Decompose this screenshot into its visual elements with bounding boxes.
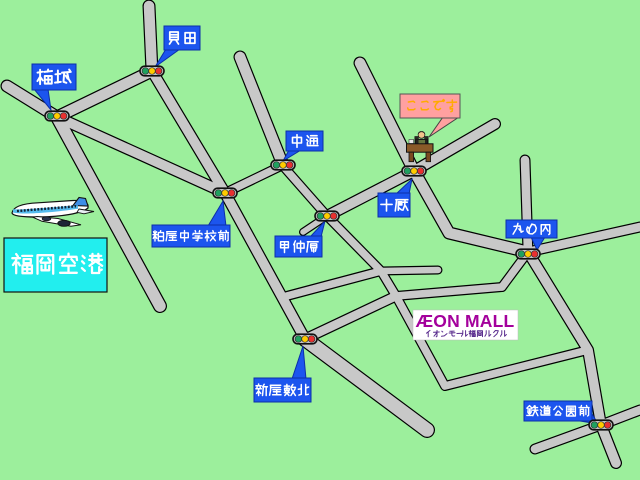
svg-text:ÆON MALL: ÆON MALL — [416, 311, 515, 331]
